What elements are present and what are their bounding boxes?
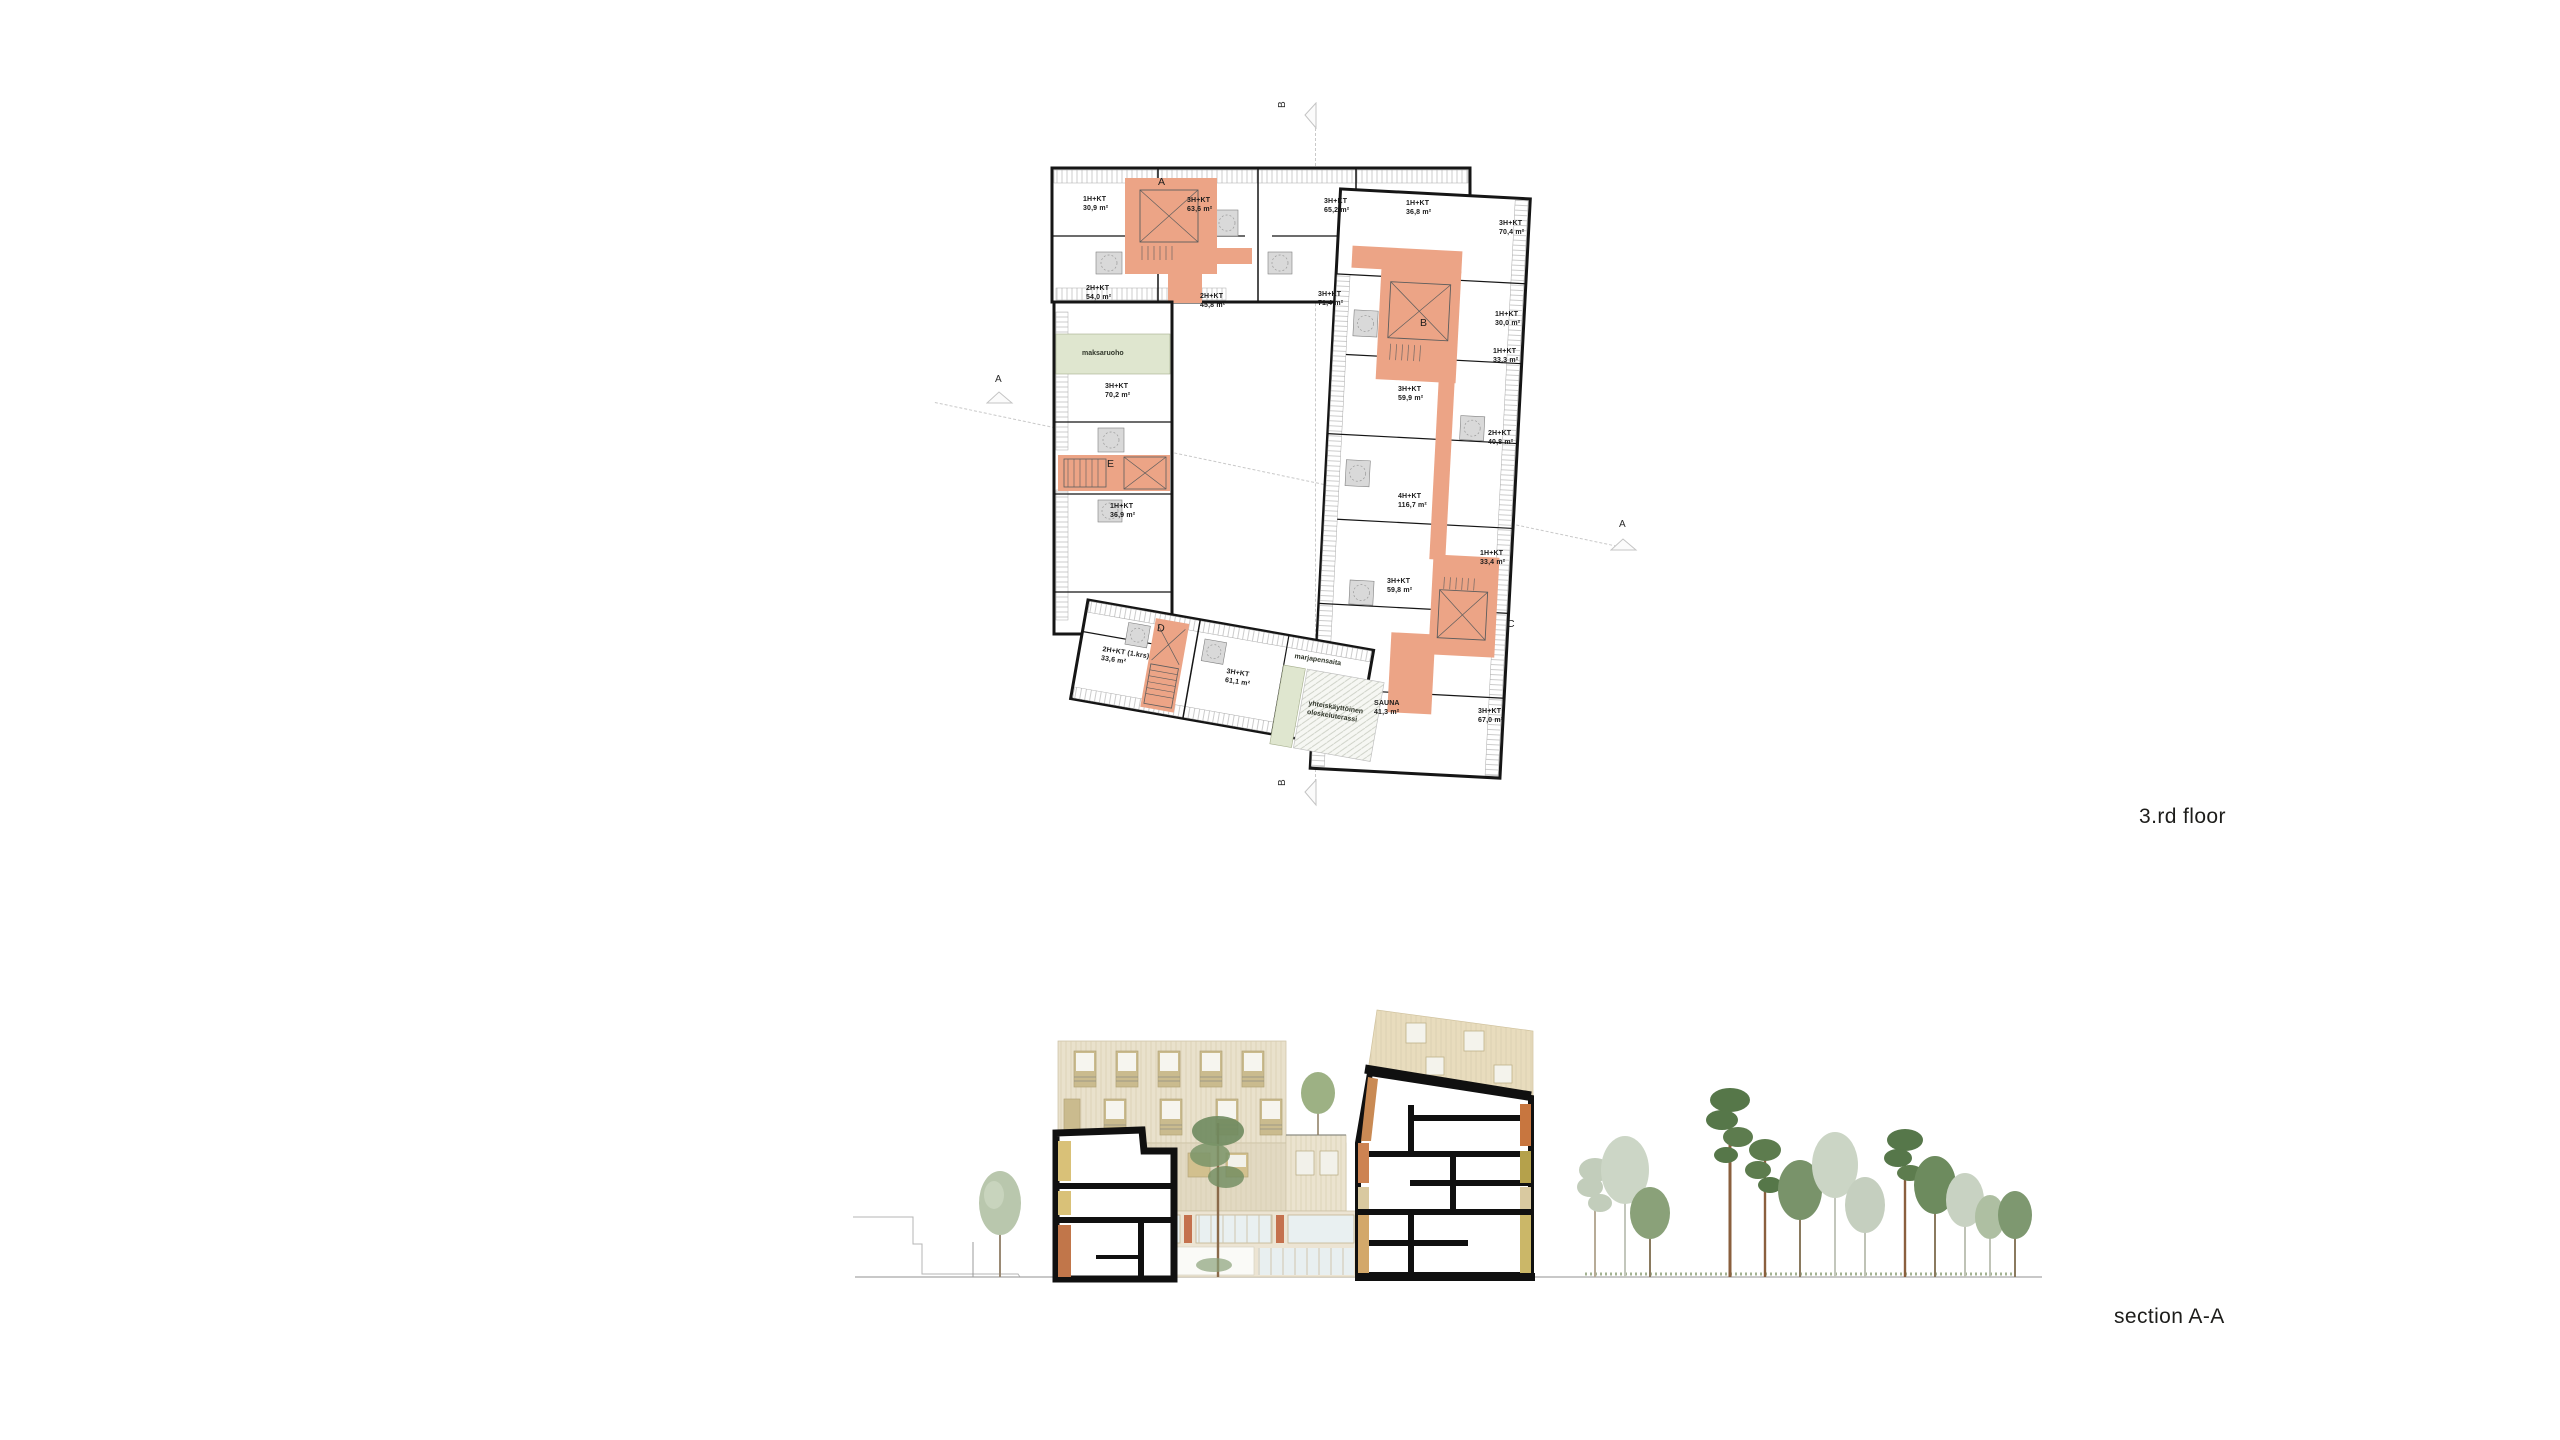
unit-1hkt-309: 1H+KT 30,9 m² [1083,196,1108,214]
unit-3hkt-636: 3H+KT 63,6 m² [1187,197,1212,215]
area-maksaruoho: maksaruoho [1082,350,1124,359]
unit-1hkt-334: 1H+KT 33,4 m² [1480,550,1505,568]
stair-a-label: A [1158,176,1165,188]
section-title: section A-A [2114,1305,2225,1329]
unit-1hkt-369: 1H+KT 36,9 m² [1110,503,1135,521]
unit-1hkt-333: 1H+KT 33,3 m² [1493,348,1518,366]
area-shared-terrace: yhteiskäyttöinen oleskeluterassi [1306,700,1363,726]
architectural-drawing-sheet: { "titles": { "floor_plan": "3.rd floor"… [0,0,2560,1440]
floor-plan-title: 3.rd floor [2139,805,2226,829]
stair-d-label: D [1156,622,1165,635]
section-marker-a-left: A [995,374,1002,385]
unit-1hkt-368: 1H+KT 36,8 m² [1406,200,1431,218]
section-marker-b-bottom: B [1277,779,1288,786]
unit-3hkt-599: 3H+KT 59,9 m² [1398,386,1423,404]
unit-3hkt-714: 3H+KT 71,4 m² [1318,291,1343,309]
unit-4hkt-1167: 4H+KT 116,7 m² [1398,493,1427,511]
section-marker-a-right: A [1619,519,1626,530]
stair-b-label: B [1420,317,1427,329]
stair-e-label: E [1107,458,1114,470]
plan-labels-layer: 1H+KT 30,9 m²3H+KT 63,6 m²2H+KT 54,0 m²2… [0,0,2560,1440]
unit-2hkt-458: 2H+KT 45,8 m² [1200,293,1225,311]
area-marjapensaita: marjapensaita [1294,653,1342,669]
unit-1hkt-300: 1H+KT 30,0 m² [1495,311,1520,329]
unit-2hkt-336-1krs: 2H+KT (1.krs) 33,6 m² [1100,646,1149,671]
unit-3hkt-702: 3H+KT 70,2 m² [1105,383,1130,401]
section-marker-b-top: B [1277,101,1288,108]
stair-c-label: C [1507,618,1515,630]
unit-2hkt-540: 2H+KT 54,0 m² [1086,285,1111,303]
unit-3hkt-611: 3H+KT 61,1 m² [1224,668,1252,689]
unit-3hkt-704: 3H+KT 70,4 m² [1499,220,1524,238]
unit-2hkt-408: 2H+KT 40,8 m² [1488,430,1513,448]
unit-3hkt-652: 3H+KT 65,2 m² [1324,198,1349,216]
unit-3hkt-598: 3H+KT 59,8 m² [1387,578,1412,596]
unit-3hkt-670: 3H+KT 67,0 m² [1478,708,1503,726]
room-sauna: SAUNA 41,3 m² [1374,700,1400,718]
